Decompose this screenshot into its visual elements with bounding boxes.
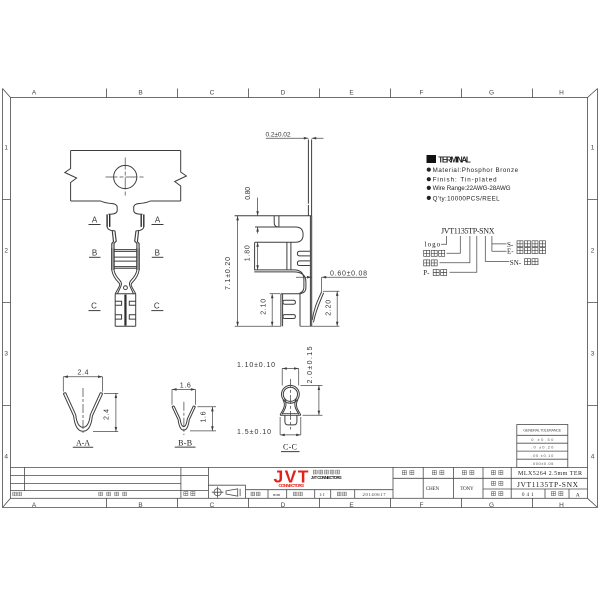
svg-text:mm: mm [273,492,281,497]
svg-text:A-A: A-A [76,439,90,448]
svg-text:2: 2 [4,248,8,255]
svg-text:B: B [138,90,142,97]
svg-text:B: B [138,502,142,509]
svg-text:G: G [489,502,494,509]
svg-text:C: C [91,301,97,310]
svg-text:20140617: 20140617 [363,492,387,497]
svg-text:Finish: Tin-plated: Finish: Tin-plated [433,177,498,184]
svg-text:E-: E- [507,248,514,256]
svg-text:C-C: C-C [283,443,297,452]
svg-text:Wire Range:22AWG-28AWG: Wire Range:22AWG-28AWG [433,185,511,192]
svg-text:C: C [210,502,215,509]
svg-text:B: B [155,248,160,257]
svg-text:TERMINAL: TERMINAL [438,156,471,165]
svg-text:3: 3 [591,351,595,358]
svg-text:D: D [281,502,286,509]
svg-text:TONY: TONY [460,486,474,492]
svg-text:D: D [281,90,286,97]
svg-text:2.20: 2.20 [326,300,333,316]
svg-text:JVT CONNECTORS: JVT CONNECTORS [311,475,342,480]
svg-text:2.4: 2.4 [78,369,89,376]
svg-text:A: A [576,492,580,498]
svg-text:G: G [489,90,494,97]
svg-text:GENERAL TOLERANCE: GENERAL TOLERANCE [523,428,561,433]
svg-text:1.5±0.10: 1.5±0.10 [237,429,271,436]
svg-text:4: 4 [4,454,8,461]
svg-text:7.1±0.20: 7.1±0.20 [225,257,232,290]
svg-text:1.10±0.10: 1.10±0.10 [237,362,275,369]
svg-text:1:1: 1:1 [319,492,326,497]
svg-text:Q'ty:10000PCS/REEL: Q'ty:10000PCS/REEL [433,195,501,202]
svg-text:0.80: 0.80 [245,187,252,200]
svg-text:Material:Phosphor Bronze: Material:Phosphor Bronze [433,167,519,174]
svg-text:041: 041 [522,492,534,498]
svg-text:1.6: 1.6 [201,411,208,422]
svg-text:H: H [559,90,564,97]
svg-text:JVT1135TP-SNX: JVT1135TP-SNX [517,480,579,489]
svg-text:A: A [32,90,37,97]
svg-text:JVT1135TP-SNX: JVT1135TP-SNX [441,227,495,236]
svg-text:1: 1 [4,145,8,152]
svg-text:.00 ±0.10: .00 ±0.10 [531,453,554,458]
svg-text:MLX5264 2.5mm TER: MLX5264 2.5mm TER [518,471,582,477]
svg-text:C: C [210,90,215,97]
svg-text:CHEN: CHEN [426,486,440,492]
svg-text:F: F [420,90,424,97]
svg-text:1: 1 [591,145,595,152]
svg-text:P-: P- [423,269,430,277]
svg-text:1.6: 1.6 [180,382,191,389]
svg-text:4: 4 [591,454,595,461]
svg-text:H: H [559,502,564,509]
svg-text:2.0±0.15: 2.0±0.15 [307,346,314,383]
svg-text:0.60±0.08: 0.60±0.08 [330,271,367,278]
svg-text:2.10: 2.10 [260,299,267,315]
svg-text:C: C [154,301,160,310]
svg-text:1.80: 1.80 [245,245,252,261]
svg-text:logo: logo [425,241,441,249]
svg-text:2.4: 2.4 [104,409,111,420]
svg-text:F: F [420,502,424,509]
svg-text:SN-: SN- [510,259,522,267]
svg-text:.000±0.05: .000±0.05 [531,461,554,466]
svg-text:2: 2 [591,248,595,255]
svg-text:E: E [349,502,354,509]
svg-text:B: B [92,248,97,257]
svg-text:3: 3 [4,351,8,358]
svg-text:0 ±0.30: 0 ±0.30 [531,437,554,442]
svg-text:A: A [155,215,161,224]
svg-text:CONNECTORS: CONNECTORS [279,483,305,488]
svg-text:B-B: B-B [178,438,192,447]
svg-text:A: A [32,502,37,509]
svg-text:.0 ±0.20: .0 ±0.20 [531,445,554,450]
svg-text:A: A [92,215,98,224]
svg-text:0.2±0.02: 0.2±0.02 [266,132,291,139]
svg-text:E: E [349,90,354,97]
